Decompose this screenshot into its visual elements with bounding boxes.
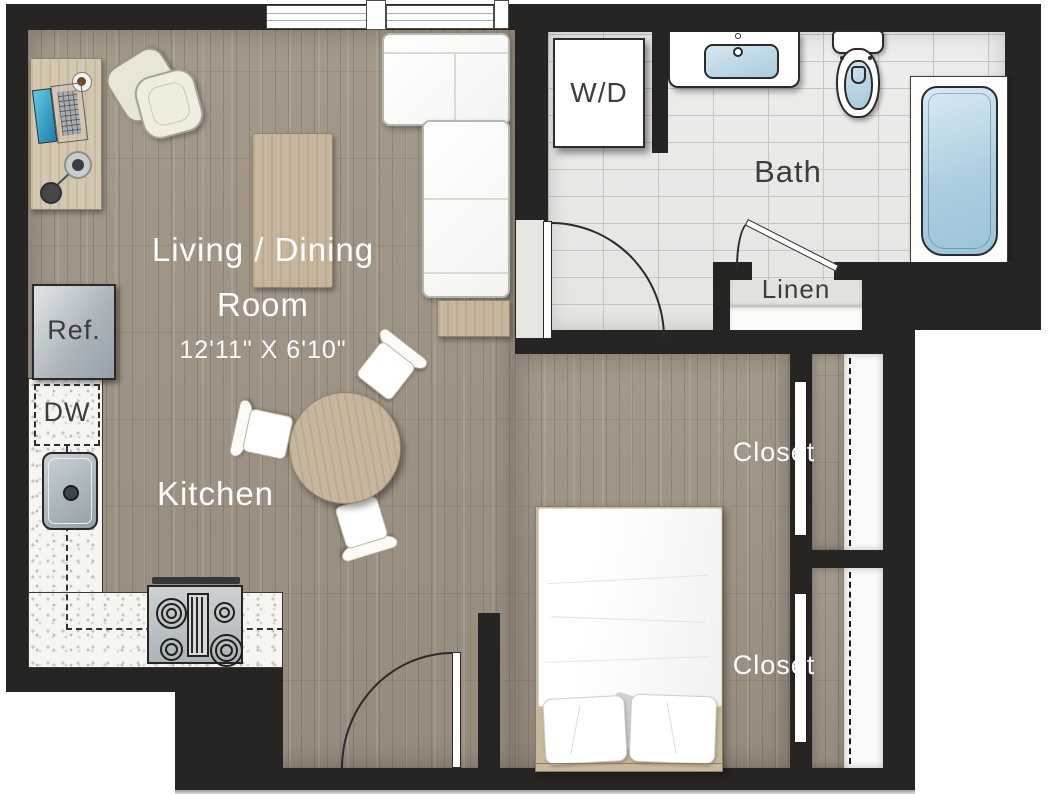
sofa-cushion-seam (424, 198, 508, 200)
kitchen-faucet (63, 485, 79, 501)
plan-bottom-shadow (175, 790, 915, 794)
toilet (828, 30, 884, 120)
desk (30, 58, 102, 210)
vanity-faucet-hole (735, 33, 741, 39)
dining-table (289, 392, 401, 504)
wall-wd-bath-divider (652, 32, 668, 153)
office-chair-cushion-line (145, 80, 192, 128)
stove-grill (187, 593, 209, 657)
dining-chair-seat (242, 408, 294, 460)
bed-pillow-right (629, 694, 717, 765)
closet-upper-rod-line (849, 358, 851, 546)
window-mullion (366, 0, 386, 30)
toilet-bolt (868, 56, 872, 60)
living-dining-label-line1: Living / Dining (88, 232, 438, 268)
bed (535, 506, 723, 772)
closet-lower-label: Closet (722, 651, 826, 681)
kitchen-label: Kitchen (128, 476, 303, 512)
sofa-armrest-seam (424, 272, 508, 274)
living-dining-label-line2: Room (88, 287, 438, 323)
toilet-flush (851, 66, 866, 84)
bathroom-vanity (668, 32, 800, 88)
closet-lower-rod-line (849, 572, 851, 764)
laptop-keyboard (51, 82, 89, 143)
floor-plan: Linen Closet Closet (0, 0, 1051, 794)
living-dining-dimensions: 12'11" X 6'10" (88, 337, 438, 365)
duvet-wrinkle (545, 656, 710, 663)
window-end-cap (494, 0, 509, 29)
window-pane (266, 5, 367, 29)
exterior-area (915, 330, 1051, 794)
exterior-area (0, 692, 175, 794)
sofa-chaise (382, 33, 510, 126)
stove-handle (152, 577, 240, 584)
toilet-bolt (840, 56, 844, 60)
laptop (32, 82, 91, 146)
bedroom-door-leaf (452, 652, 461, 768)
desk-lamp-head (64, 151, 92, 179)
pillow-fold-line (667, 702, 677, 753)
sofa-cushion-seam (454, 52, 456, 124)
window-pane (386, 5, 494, 29)
washer-dryer-label: W/D (553, 78, 645, 109)
stove-burner (160, 638, 183, 661)
pillow-fold-line (570, 705, 581, 754)
duvet-wrinkle (547, 575, 707, 584)
stove-burner (210, 634, 243, 667)
desk-lamp-base (40, 182, 62, 204)
sofa-back-seam (384, 52, 508, 54)
bed-duvet (538, 508, 722, 707)
wall-bath-step (862, 262, 1041, 332)
wall-bedroom-stub (478, 613, 500, 792)
dining-chair (229, 399, 298, 468)
stove (147, 585, 243, 664)
stove-grill-bars (191, 597, 205, 653)
kitchen-sink (42, 452, 98, 530)
desk-lamp-bulb (72, 159, 84, 171)
duvet-wrinkle (551, 616, 706, 622)
bathtub (921, 86, 998, 256)
bed-pillow-left (542, 695, 627, 765)
linen-shelf (730, 307, 862, 332)
bath-label: Bath (736, 155, 840, 189)
dishwasher-label: DW (34, 398, 100, 428)
vanity-faucet (733, 47, 743, 57)
bed-footboard-seam (536, 763, 722, 764)
sofa-section (422, 120, 510, 298)
stove-burner (156, 598, 187, 629)
bath-doorway (516, 220, 544, 338)
linen-label: Linen (730, 275, 862, 304)
stove-burner (214, 602, 235, 623)
side-table (437, 300, 510, 337)
office-chair (110, 46, 210, 146)
bath-door-leaf (543, 221, 552, 339)
closet-upper-label: Closet (722, 438, 826, 468)
bathtub-inner-line (928, 93, 991, 249)
